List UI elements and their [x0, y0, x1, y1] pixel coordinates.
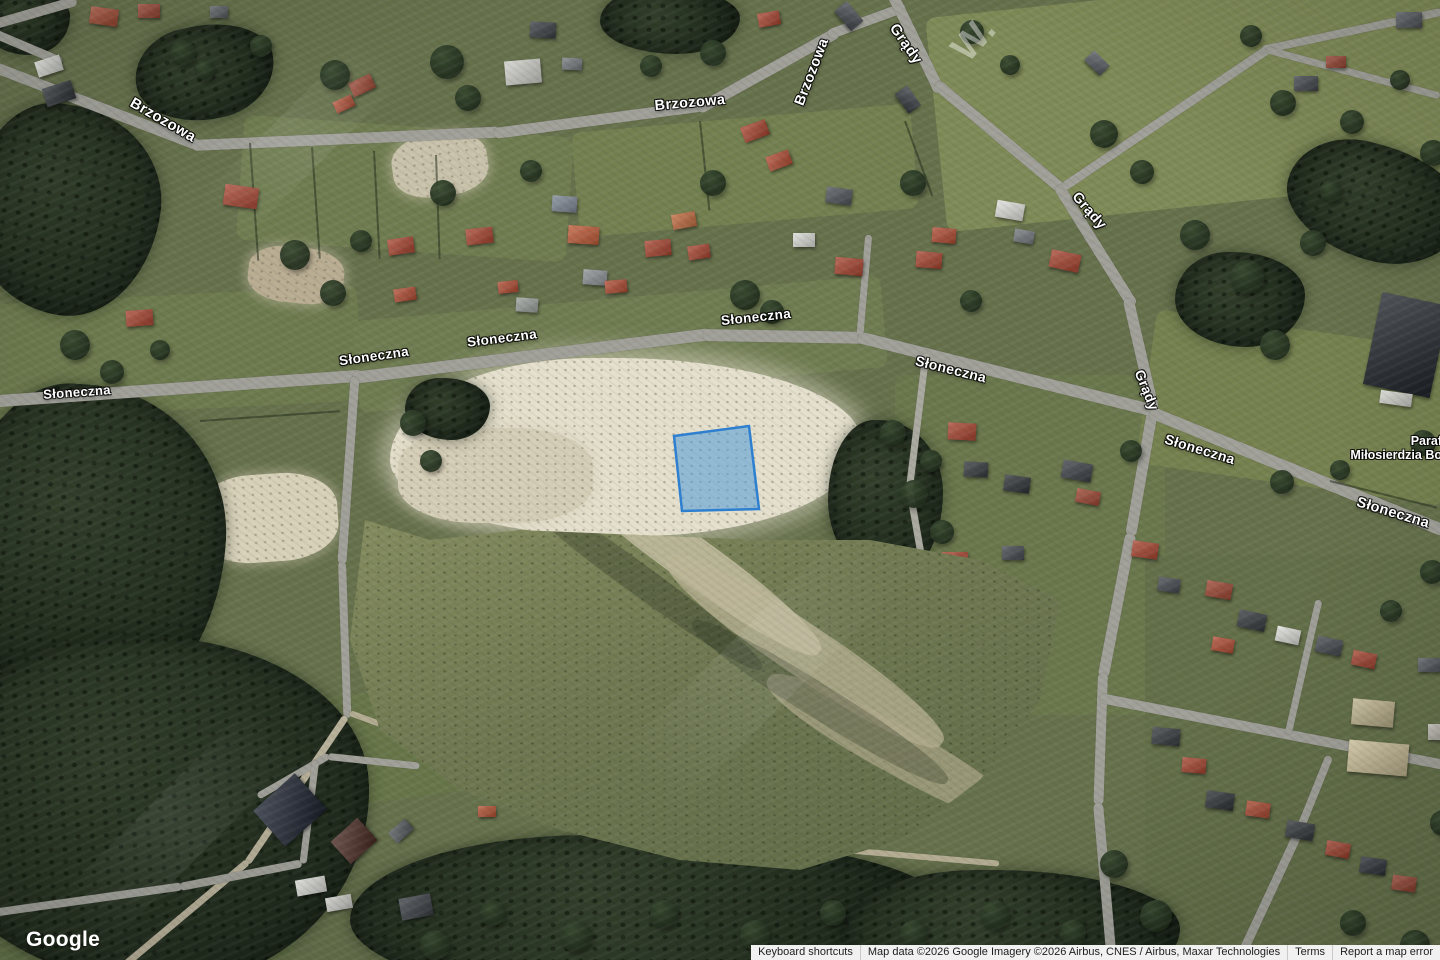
parcel-overlay [0, 0, 1440, 960]
google-logo[interactable]: Google [26, 928, 100, 952]
report-map-error-link[interactable]: Report a map error [1332, 945, 1440, 960]
parcel-polygon[interactable] [674, 426, 759, 511]
map-canvas[interactable]: Brzozowa Brzozowa Brzozowa Grądy Grądy G… [0, 0, 1440, 960]
attribution-bar: Keyboard shortcuts Map data ©2026 Google… [751, 945, 1440, 960]
map-data-attribution: Map data ©2026 Google Imagery ©2026 Airb… [860, 945, 1287, 960]
poi-label-line1: Paraf [1350, 434, 1440, 448]
poi-label-parafia: Paraf Miłosierdzia Bo [1350, 434, 1440, 462]
terms-link[interactable]: Terms [1287, 945, 1332, 960]
poi-label-line2: Miłosierdzia Bo [1350, 448, 1440, 462]
keyboard-shortcuts-button[interactable]: Keyboard shortcuts [751, 945, 860, 960]
